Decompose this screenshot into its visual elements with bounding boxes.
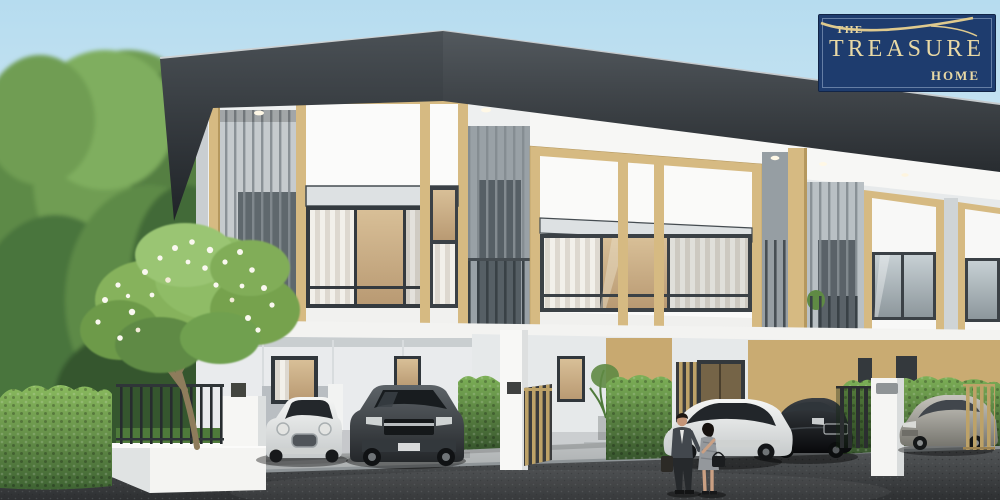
treasure-home-logo: THE TREASURE HOME xyxy=(818,14,996,92)
hedge-middle xyxy=(606,375,672,460)
mini-headlight-left xyxy=(277,423,289,435)
fence-railing xyxy=(116,384,224,444)
mailbox xyxy=(231,383,246,397)
hedge-left xyxy=(0,385,112,490)
gate-dark-right xyxy=(836,386,871,448)
unit-a-window-2 xyxy=(394,356,421,390)
logo-word-home: HOME xyxy=(931,68,980,84)
unit-a-window-1 xyxy=(271,356,318,404)
gate-gold-right xyxy=(963,384,995,450)
mini-headlight-right xyxy=(319,423,331,435)
gate-left-open xyxy=(524,384,552,466)
post-lamp xyxy=(876,383,898,394)
unit-c-bay-window-1 xyxy=(864,190,944,342)
unit-a-balcony-screen xyxy=(468,126,530,338)
unit-c-bay-window-2 xyxy=(958,202,1000,344)
suv-license-plate xyxy=(398,443,420,451)
suv-grille xyxy=(384,419,434,435)
gate-post-right xyxy=(871,378,904,476)
unit-b-bay-window xyxy=(530,146,762,340)
unit-a-bay-window xyxy=(296,94,468,336)
architectural-render-townhomes: THE TREASURE HOME xyxy=(0,0,1000,500)
hedge-carport-right xyxy=(458,376,502,450)
logo-swoosh-icon xyxy=(819,15,979,37)
unit-b-window xyxy=(557,356,585,402)
handbag xyxy=(712,456,725,467)
gate-keypad xyxy=(507,382,521,394)
gate-post-left xyxy=(500,330,528,470)
logo-word-treasure: TREASURE xyxy=(819,36,995,63)
unit-c-slat-balcony xyxy=(807,182,864,340)
mini-grille xyxy=(292,434,317,447)
briefcase xyxy=(661,456,673,472)
